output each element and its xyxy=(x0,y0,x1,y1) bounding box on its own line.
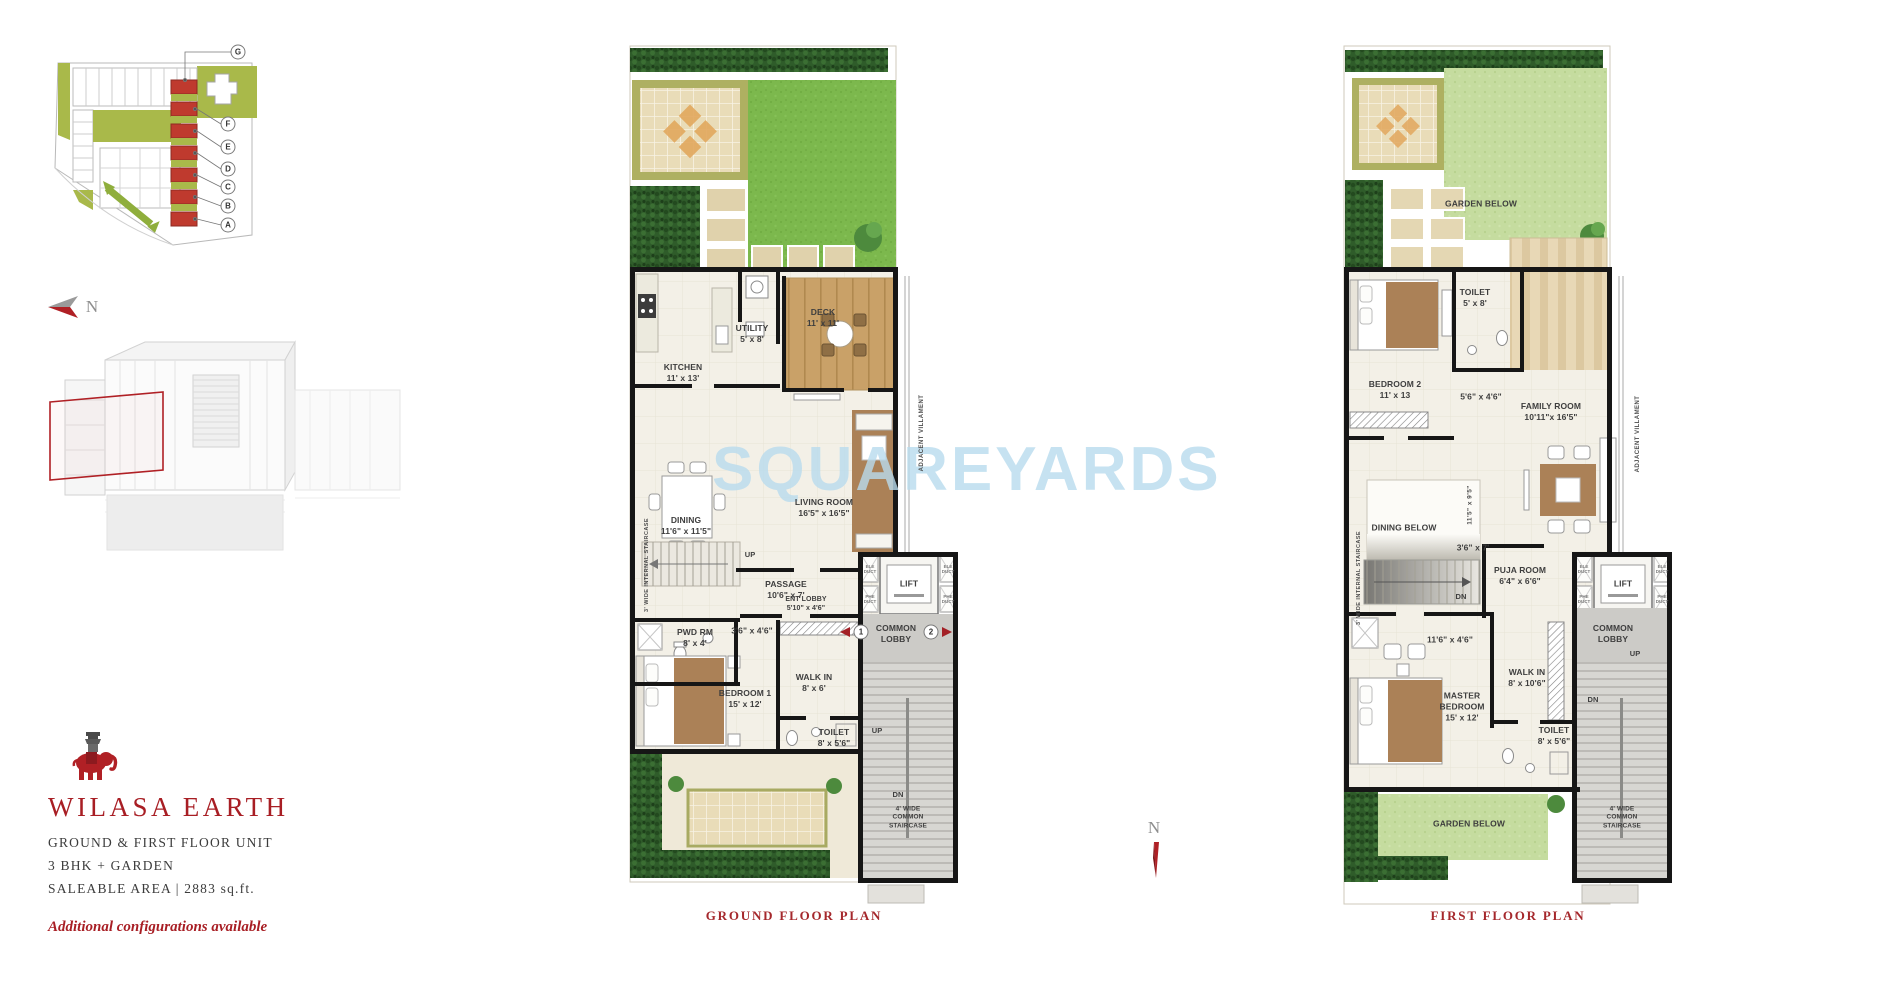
room-dims: 11'6" x 11'5" xyxy=(661,526,711,537)
dn-marker-common: DN xyxy=(1587,695,1598,705)
room-dims: 5' x 8' xyxy=(736,334,769,345)
room-name: PASSAGE xyxy=(765,579,807,590)
room-dims: 11' x 13 xyxy=(1369,390,1421,401)
room-name: WALK IN xyxy=(1508,667,1545,678)
room-name: LIFT xyxy=(900,578,918,589)
elephant-logo xyxy=(66,730,122,782)
room-name: TOILET xyxy=(818,727,851,738)
room-dims: 11' x 13' xyxy=(664,373,702,384)
room-label-utility: UTILITY 5' x 8' xyxy=(736,323,769,345)
room-dims: 11'6" x 4'6" xyxy=(1427,634,1473,645)
room-name: GARDEN BELOW xyxy=(1433,818,1505,829)
unit-marker-g: G xyxy=(231,45,246,60)
common-staircase-label: 4' WIDE COMMON STAIRCASE xyxy=(882,805,934,830)
room-name: COMMON LOBBY xyxy=(876,623,916,645)
room-label-toilet: TOILET 8' x 5'6" xyxy=(818,727,851,749)
room-name: TOILET xyxy=(1460,287,1491,298)
room-dims: 15' x 12' xyxy=(719,699,771,710)
central-garden xyxy=(93,110,181,142)
room-label-common-lobby: COMMON LOBBY xyxy=(1593,623,1633,645)
room-name: BEDROOM 1 xyxy=(719,688,771,699)
room-label-bedroom2: BEDROOM 2 11' x 13 xyxy=(1369,379,1421,401)
internal-staircase-label: 3' WIDE INTERNAL STAIRCASE xyxy=(644,518,650,612)
room-label-garden-below-bottom: GARDEN BELOW xyxy=(1433,818,1505,829)
unit-marker-e: E xyxy=(221,140,236,155)
duct-label-phe: PHE DUCT xyxy=(942,594,955,604)
room-dims: 8' x 4' xyxy=(677,638,713,649)
room-dims: 16'5" x 16'5" xyxy=(795,508,853,519)
dims-label-passage-f: 5'6" x 4'6" xyxy=(1460,391,1502,402)
room-label-toilet2: TOILET 5' x 8' xyxy=(1460,287,1491,309)
internal-staircase-label: 3' WIDE INTERNAL STAIRCASE xyxy=(1356,531,1362,625)
room-label-family: FAMILY ROOM 10'11"x 16'5" xyxy=(1521,401,1581,423)
site-map-drawing xyxy=(45,40,315,295)
rear-garden xyxy=(630,754,858,878)
elevation-sketch xyxy=(45,330,405,565)
unit-marker-b: B xyxy=(221,199,236,214)
room-name: PUJA ROOM xyxy=(1494,565,1546,576)
dn-marker-internal: DN xyxy=(1455,592,1466,602)
room-label-deck: DECK 11' x 11' xyxy=(807,307,839,329)
duct-label-ele: ELE DUCT xyxy=(1578,564,1591,574)
room-label-living: LIVING ROOM 16'5" x 16'5" xyxy=(795,497,853,519)
entry-arrow-1 xyxy=(840,627,850,637)
room-dims: 5'6" x 4'6" xyxy=(1460,391,1502,402)
north-label: N xyxy=(1148,818,1160,838)
dims-label-master-passage: 11'6" x 4'6" xyxy=(1427,634,1473,645)
deck xyxy=(786,278,894,390)
adjacent-wall xyxy=(905,276,909,556)
room-name: DINING xyxy=(661,515,711,526)
room-name: TOILET xyxy=(1538,725,1571,736)
elevation-drawing xyxy=(45,330,405,565)
duct-label-phe: PHE DUCT xyxy=(864,594,877,604)
up-marker-common: UP xyxy=(1630,649,1641,659)
unit-marker-c: C xyxy=(221,180,236,195)
configuration: 3 BHK + GARDEN xyxy=(48,858,289,874)
room-dims: 8' x 5'6" xyxy=(818,738,851,749)
ground-floor-caption: GROUND FLOOR PLAN xyxy=(628,908,960,924)
entry-arrow-2 xyxy=(942,627,952,637)
room-name: DINING BELOW xyxy=(1372,522,1437,533)
saleable-area: SALEABLE AREA | 2883 sq.ft. xyxy=(48,881,289,897)
terrace-deck-lower xyxy=(1510,272,1607,370)
room-name: ENT LOBBY xyxy=(785,595,826,604)
room-name: DECK xyxy=(807,307,839,318)
room-dims: 8' x 10'6" xyxy=(1508,678,1545,689)
first-floor-drawing xyxy=(1342,38,1674,918)
garden-below-bottom xyxy=(1344,790,1565,882)
room-label-garden-below-top: GARDEN BELOW xyxy=(1445,198,1517,209)
room-label-dining-below: DINING BELOW xyxy=(1372,522,1437,533)
dims-label-stair-landing: 3'6" x 7' xyxy=(1457,542,1490,553)
dims-label-open-area: 11'5" x 9'5" xyxy=(1467,485,1474,525)
room-label-lift: LIFT xyxy=(900,578,918,589)
project-title: WILASA EARTH xyxy=(48,792,289,823)
room-label-toilet-master: TOILET 8' x 5'6" xyxy=(1538,725,1571,747)
unit-marker-a: A xyxy=(221,218,236,233)
room-label-lift: LIFT xyxy=(1614,578,1632,589)
adjacent-villament-label: ADJACENT VILLAMENT xyxy=(919,395,925,472)
room-name: FAMILY ROOM xyxy=(1521,401,1581,412)
duct-label-ele: ELE DUCT xyxy=(942,564,955,574)
room-dims: 5'10" x 4'6" xyxy=(785,604,826,613)
room-label-bedroom1: BEDROOM 1 15' x 12' xyxy=(719,688,771,710)
room-label-common-lobby: COMMON LOBBY xyxy=(876,623,916,645)
room-label-ent-lobby: ENT LOBBY 5'10" x 4'6" xyxy=(785,595,826,613)
configurations-note: Additional configurations available xyxy=(48,919,289,936)
up-marker-common: UP xyxy=(872,726,883,736)
room-name: WALK IN xyxy=(796,672,833,683)
duct-label-phe: PHE DUCT xyxy=(1578,594,1591,604)
room-label-dining: DINING 11'6" x 11'5" xyxy=(661,515,711,537)
unit-type: GROUND & FIRST FLOOR UNIT xyxy=(48,835,289,851)
site-map: G F E D C B A xyxy=(45,40,315,295)
room-dims: 8' x 5'6" xyxy=(1538,736,1571,747)
unit-marker-d: D xyxy=(221,162,236,177)
dims-label-passage2: 3'6" x 4'6" xyxy=(731,625,773,636)
entry-marker-1: 1 xyxy=(854,625,869,640)
room-name: MASTER BEDROOM xyxy=(1439,690,1484,712)
room-dims: 8' x 6' xyxy=(796,683,833,694)
adjacent-wall xyxy=(1619,276,1623,556)
common-staircase xyxy=(863,662,953,903)
internal-staircase xyxy=(642,542,740,586)
room-dims: 6'4" x 6'6" xyxy=(1494,576,1546,587)
duct-label-ele: ELE DUCT xyxy=(864,564,877,574)
entry-marker-2: 2 xyxy=(924,625,939,640)
room-label-walkin: WALK IN 8' x 6' xyxy=(796,672,833,694)
north-label: N xyxy=(86,297,98,317)
highlighted-unit-outline xyxy=(50,392,163,480)
unit-marker-f: F xyxy=(221,117,236,132)
room-dims: 5' x 8' xyxy=(1460,298,1491,309)
dn-marker-common: DN xyxy=(892,790,903,800)
room-dims: 3'6" x 4'6" xyxy=(731,625,773,636)
room-dims: 11' x 11' xyxy=(807,318,839,329)
room-dims: 3'6" x 7' xyxy=(1457,542,1490,553)
elephant-logo-icon xyxy=(66,730,122,782)
site-north-indicator: N xyxy=(44,290,134,324)
first-floor-plan: GARDEN BELOW TOILET 5' x 8' BEDROOM 2 11… xyxy=(1342,38,1674,918)
room-label-pwd: PWD RM 8' x 4' xyxy=(677,627,713,649)
room-name: KITCHEN xyxy=(664,362,702,373)
room-label-walkin: WALK IN 8' x 10'6" xyxy=(1508,667,1545,689)
room-name: PWD RM xyxy=(677,627,713,638)
room-label-puja: PUJA ROOM 6'4" x 6'6" xyxy=(1494,565,1546,587)
common-staircase-label: 4' WIDE COMMON STAIRCASE xyxy=(1596,805,1648,830)
room-name: BEDROOM 2 xyxy=(1369,379,1421,390)
duct-label-phe: PHE DUCT xyxy=(1656,594,1669,604)
walkin-wardrobe xyxy=(1548,622,1564,720)
room-name: GARDEN BELOW xyxy=(1445,198,1517,209)
room-dims: 15' x 12' xyxy=(1439,713,1484,724)
plan-north-indicator: N xyxy=(1128,818,1184,884)
room-label-kitchen: KITCHEN 11' x 13' xyxy=(664,362,702,384)
watermark: SQUAREYARDS xyxy=(712,434,1222,505)
room-name: LIVING ROOM xyxy=(795,497,853,508)
duct-label-ele: ELE DUCT xyxy=(1656,564,1669,574)
front-garden xyxy=(630,48,896,270)
up-marker-internal: UP xyxy=(745,550,756,560)
brand-block: WILASA EARTH GROUND & FIRST FLOOR UNIT 3… xyxy=(48,792,289,936)
room-name: UTILITY xyxy=(736,323,769,334)
first-floor-caption: FIRST FLOOR PLAN xyxy=(1342,908,1674,924)
room-dims: 10'11"x 16'5" xyxy=(1521,412,1581,423)
room-label-master-bedroom: MASTER BEDROOM 15' x 12' xyxy=(1439,690,1484,723)
room-name: COMMON LOBBY xyxy=(1593,623,1633,645)
adjacent-villament-label: ADJACENT VILLAMENT xyxy=(1635,396,1641,473)
room-name: LIFT xyxy=(1614,578,1632,589)
